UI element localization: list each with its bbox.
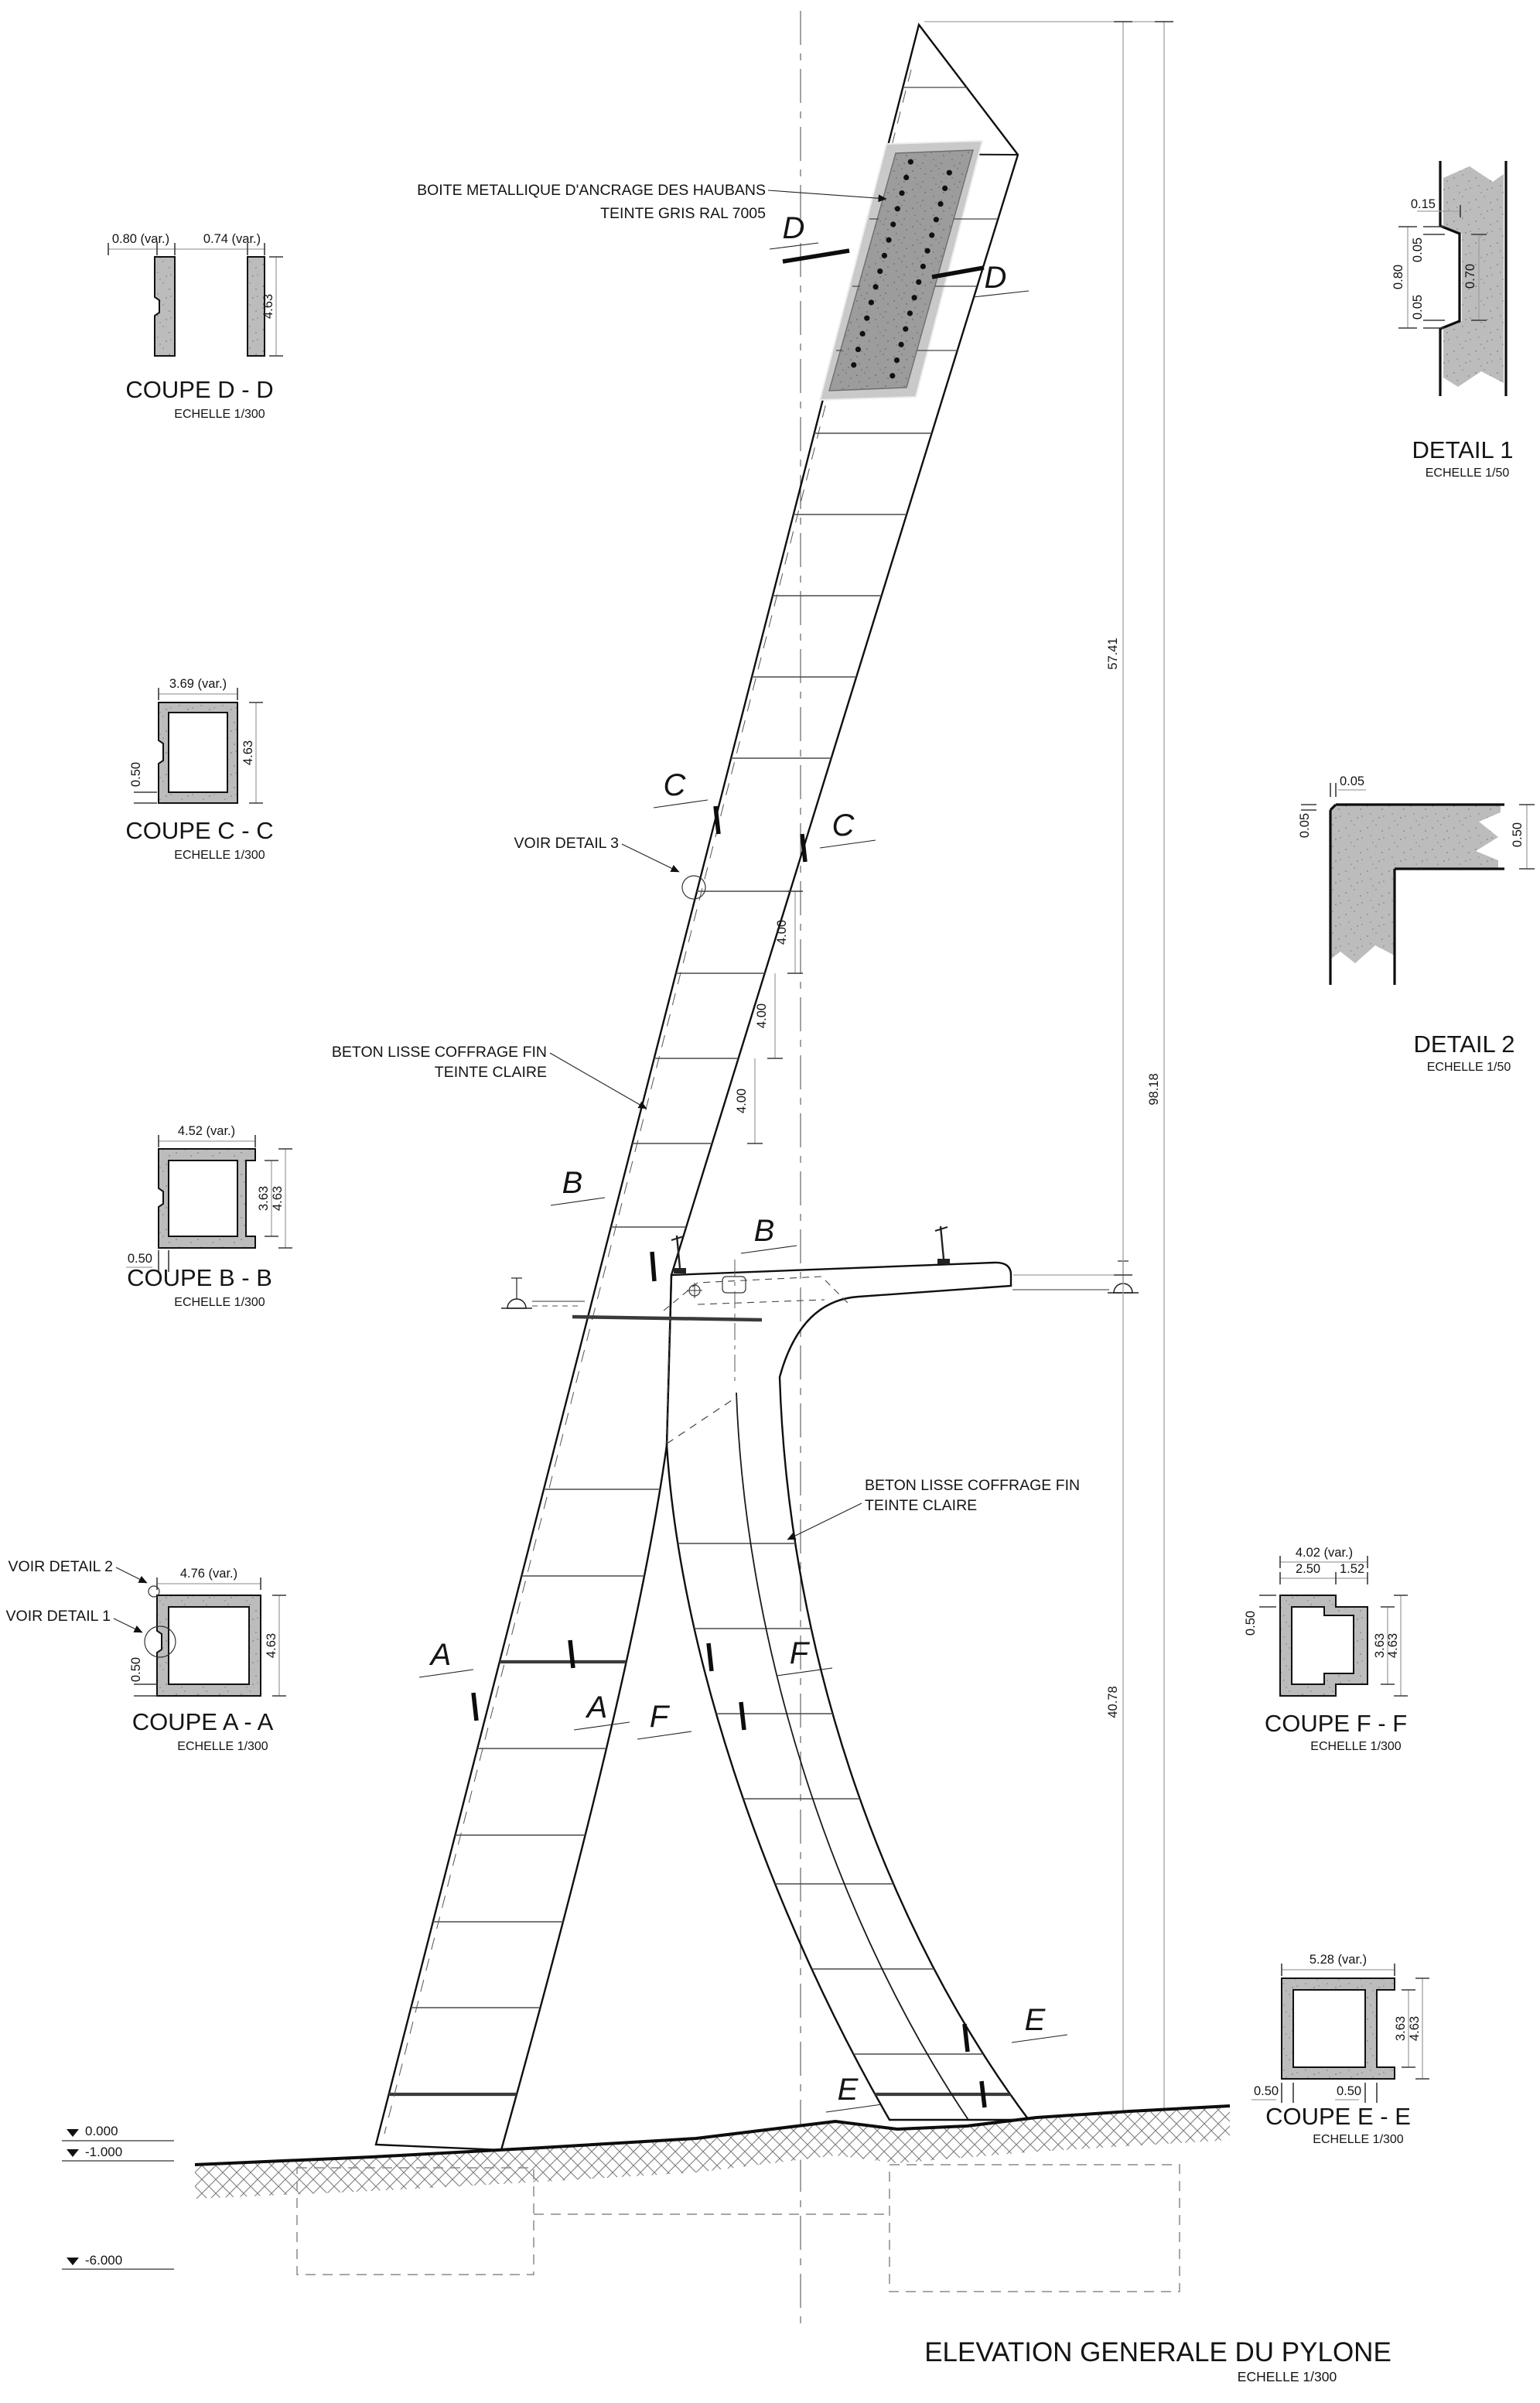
- dim-seg-2: 4.00: [755, 1003, 769, 1028]
- cut-d-left: [783, 251, 849, 261]
- aa-dim-t: 0.50: [129, 1657, 143, 1682]
- aa-scale: ECHELLE 1/300: [177, 1740, 268, 1753]
- level-minus6: -6.000: [85, 2253, 122, 2268]
- dd-dim-h: 4.63: [261, 294, 275, 319]
- ee-scale: ECHELLE 1/300: [1313, 2133, 1404, 2146]
- cc-scale: ECHELLE 1/300: [174, 849, 265, 862]
- d1-dim-e: 0.70: [1463, 264, 1477, 289]
- d2-dim-a: 0.05: [1340, 774, 1364, 788]
- anchor-dot: [903, 326, 908, 332]
- anchor-dot: [894, 357, 900, 363]
- level-marks: 0.000 -1.000 -6.000: [62, 2124, 174, 2269]
- ff-scale: ECHELLE 1/300: [1310, 1740, 1402, 1753]
- anchor-box-label-line1: BOITE METALLIQUE D'ANCRAGE DES HAUBANS: [417, 182, 766, 199]
- ff-dim-t: 0.50: [1244, 1611, 1258, 1636]
- bb-dim-w: 4.52 (var.): [178, 1124, 235, 1138]
- cc-dim-t: 0.50: [129, 762, 143, 787]
- drawing-sheet: D D C C B B A A F F E E BOITE METALLIQUE…: [0, 0, 1540, 2403]
- coupe-ff: 4.02 (var.) 2.50 1.52 3.63 4.63 0.50 COU…: [1244, 1546, 1408, 1753]
- anchor-dot: [890, 221, 896, 227]
- cut-e-left: [982, 2081, 985, 2107]
- level-minus1: -1.000: [85, 2145, 122, 2159]
- d1-dim-a: 0.15: [1411, 197, 1436, 211]
- mast-segment-joints: [325, 433, 1029, 2094]
- d1-dim-b: 0.05: [1411, 238, 1425, 262]
- cut-f-left: [709, 1643, 712, 1671]
- ff-dim-w: 4.02 (var.): [1296, 1546, 1353, 1560]
- coupe-dd: 0.80 (var.) 0.74 (var.) 4.63 COUPE D - D…: [108, 232, 283, 421]
- dim-40-78: 40.78: [1106, 1686, 1120, 1718]
- cut-a-left: [473, 1693, 476, 1721]
- dd-dim-w2: 0.74 (var.): [203, 232, 261, 246]
- ee-dim-t2: 0.50: [1337, 2084, 1361, 2098]
- aa-dim-h: 4.63: [265, 1633, 278, 1658]
- cc-title: COUPE C - C: [125, 817, 273, 844]
- cut-c-right: [802, 834, 805, 862]
- cut-a-right: [570, 1640, 573, 1668]
- deck-stanchion-right: [935, 1226, 950, 1264]
- segment-dimensions: 4.00 4.00 4.00: [735, 891, 803, 1143]
- letter-d-right: D: [985, 261, 1007, 295]
- anchor-dot: [877, 268, 883, 274]
- dd-dim-w1: 0.80 (var.): [112, 232, 169, 246]
- detail-1: 0.15 0.05 0.80 0.05 0.70 DETAIL 1 ECHELL…: [1391, 161, 1513, 480]
- level-0: 0.000: [85, 2124, 118, 2138]
- ground-hatch: [195, 2106, 1230, 2199]
- anchor-dot: [924, 248, 930, 254]
- anchor-dot: [911, 295, 917, 300]
- detail-2-circle: [149, 1586, 159, 1597]
- bearing-symbol-left: [501, 1278, 585, 1308]
- d1-dim-c: 0.80: [1391, 265, 1405, 289]
- coupe-cc: 3.69 (var.) 4.63 0.50 COUPE C - C ECHELL…: [125, 677, 273, 862]
- ee-dim-t1: 0.50: [1254, 2084, 1279, 2098]
- dim-seg-3: 4.00: [735, 1089, 749, 1113]
- letter-c-right: C: [832, 808, 855, 843]
- drawing-scale: ECHELLE 1/300: [1238, 2369, 1337, 2384]
- anchor-dot: [903, 175, 909, 180]
- ff-dim-hi: 3.63: [1373, 1633, 1387, 1658]
- coupe-aa: VOIR DETAIL 2 VOIR DETAIL 1 4.76 (var.) …: [6, 1558, 286, 1753]
- drawing-title: ELEVATION GENERALE DU PYLONE: [924, 2337, 1391, 2367]
- letter-f-right: F: [790, 1636, 811, 1670]
- coupe-bb: 4.52 (var.) 3.63 4.63 0.50 COUPE B - B E…: [126, 1124, 292, 1309]
- letter-c-left: C: [664, 768, 687, 802]
- foundation-right: [890, 2165, 1180, 2292]
- coupe-ee: 5.28 (var.) 3.63 4.63 0.50 0.50 COUPE E …: [1251, 1953, 1429, 2146]
- d1-dim-d: 0.05: [1411, 295, 1425, 320]
- back-leg-joints: [650, 1543, 1040, 2094]
- cut-f-right: [741, 1702, 744, 1730]
- ff-dim-w1: 2.50: [1296, 1562, 1320, 1576]
- deck-duct-symbol: [722, 1277, 746, 1293]
- cc-dim-h: 4.63: [241, 740, 255, 765]
- anchor-dot: [916, 279, 921, 285]
- ee-dim-h: 4.63: [1408, 2016, 1422, 2041]
- bb-dim-h: 4.63: [271, 1186, 285, 1211]
- d1-scale: ECHELLE 1/50: [1426, 467, 1510, 480]
- anchor-dot: [942, 186, 948, 191]
- letter-d-left: D: [783, 211, 805, 245]
- section-cut-marks: [473, 251, 985, 2107]
- title-block: ELEVATION GENERALE DU PYLONE ECHELLE 1/3…: [924, 2337, 1391, 2384]
- anchor-dot: [934, 217, 939, 222]
- elevation-annotations: BOITE METALLIQUE D'ANCRAGE DES HAUBANS T…: [332, 182, 1080, 1540]
- back-leg-and-deck: [667, 1263, 1029, 2120]
- beton-left-line2: TEINTE CLAIRE: [435, 1064, 547, 1081]
- d1-title: DETAIL 1: [1412, 436, 1514, 463]
- anchor-dot: [920, 264, 926, 269]
- letter-b-left: B: [562, 1166, 583, 1200]
- bearing-symbol-right: [1012, 1261, 1139, 1293]
- aa-dim-w: 4.76 (var.): [180, 1567, 237, 1581]
- d2-scale: ECHELLE 1/50: [1427, 1061, 1511, 1074]
- dd-scale: ECHELLE 1/300: [174, 408, 265, 421]
- aa-note-detail2: VOIR DETAIL 2: [9, 1558, 113, 1575]
- dim-57-41: 57.41: [1106, 637, 1120, 669]
- anchor-dot: [860, 331, 866, 337]
- letter-b-right: B: [754, 1214, 775, 1248]
- ff-dim-h: 4.63: [1386, 1633, 1400, 1658]
- letter-a-left: A: [429, 1638, 452, 1672]
- anchor-dot: [947, 170, 952, 176]
- d2-dim-b: 0.05: [1298, 813, 1312, 838]
- anchor-dot: [855, 347, 861, 352]
- dim-seg-1: 4.00: [775, 920, 789, 945]
- ee-dim-w: 5.28 (var.): [1310, 1953, 1367, 1967]
- anchor-dot: [907, 310, 913, 316]
- letter-e-right: E: [1025, 2003, 1047, 2037]
- cc-dim-w: 3.69 (var.): [169, 677, 227, 691]
- ground: [195, 2106, 1230, 2199]
- anchor-dot: [886, 238, 891, 243]
- anchor-dot: [937, 201, 943, 207]
- letter-f-left: F: [650, 1700, 671, 1734]
- beton-right-line2: TEINTE CLAIRE: [865, 1497, 977, 1514]
- letter-e-left: E: [838, 2073, 859, 2107]
- deck-details: [501, 1226, 1139, 1383]
- anchor-dot: [882, 253, 887, 258]
- anchor-dot: [899, 342, 904, 347]
- anchor-dot: [851, 362, 856, 367]
- cut-b: [652, 1252, 654, 1281]
- anchor-box-label-line2: TEINTE GRIS RAL 7005: [600, 205, 766, 222]
- bb-title: COUPE B - B: [127, 1264, 272, 1291]
- d2-dim-c: 0.50: [1511, 822, 1525, 847]
- aa-note-detail1: VOIR DETAIL 1: [6, 1608, 111, 1625]
- anchor-dot: [895, 206, 900, 211]
- ff-title: COUPE F - F: [1265, 1710, 1407, 1737]
- beton-right-line1: BETON LISSE COFFRAGE FIN: [865, 1477, 1080, 1494]
- anchor-dot: [908, 159, 913, 165]
- anchor-dot: [929, 232, 934, 238]
- crotch-hidden-line-2: [667, 1397, 736, 1444]
- anchor-dot: [872, 284, 878, 289]
- anchor-dot: [890, 373, 895, 378]
- anchor-dot: [864, 316, 869, 321]
- bb-dim-hi: 3.63: [257, 1186, 271, 1211]
- ee-title: COUPE E - E: [1265, 2103, 1411, 2130]
- bb-scale: ECHELLE 1/300: [174, 1296, 265, 1309]
- detail-2: 0.05 0.05 0.50 DETAIL 2 ECHELLE 1/50: [1298, 774, 1535, 1074]
- dd-title: COUPE D - D: [125, 376, 273, 403]
- dim-98-18: 98.18: [1147, 1073, 1161, 1105]
- pylon-drawing: D D C C B B A A F F E E BOITE METALLIQUE…: [0, 0, 1540, 2403]
- voir-detail-3-label: VOIR DETAIL 3: [514, 835, 619, 852]
- d2-title: DETAIL 2: [1414, 1031, 1515, 1058]
- aa-title: COUPE A - A: [132, 1708, 274, 1735]
- anchor-dot: [869, 299, 874, 305]
- ee-dim-hi: 3.63: [1394, 2016, 1408, 2041]
- letter-a-right: A: [586, 1690, 608, 1724]
- anchor-dot: [899, 190, 904, 196]
- deck-level-joint: [572, 1317, 762, 1320]
- section-letters: D D C C B B A A F F E E: [419, 211, 1067, 2112]
- ff-dim-w2: 1.52: [1340, 1562, 1364, 1576]
- detail-3-circle: [682, 876, 705, 899]
- beton-left-line1: BETON LISSE COFFRAGE FIN: [332, 1044, 547, 1061]
